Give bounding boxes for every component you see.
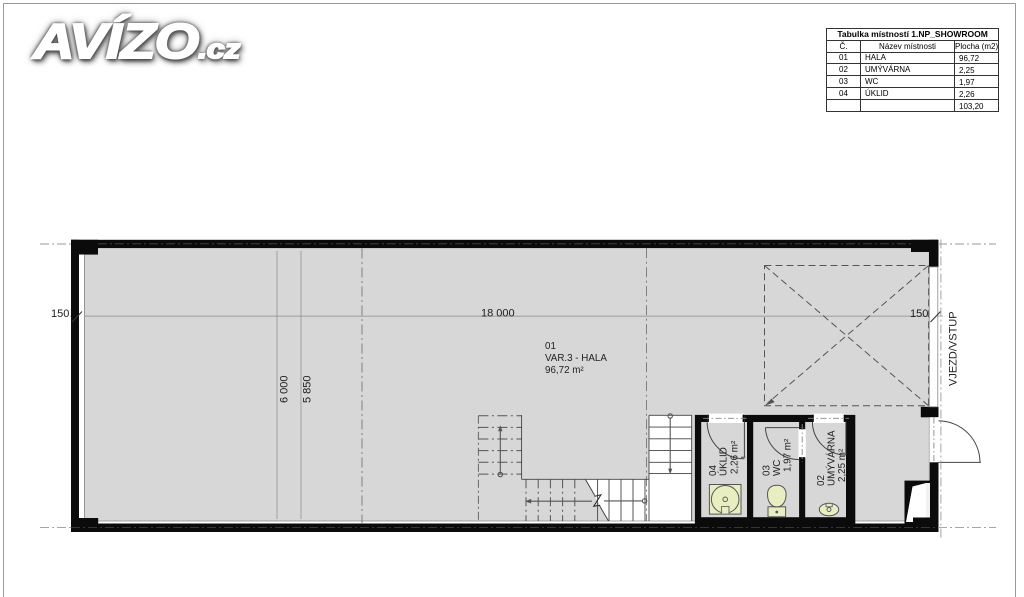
svg-text:UMÝVÁRNA: UMÝVÁRNA	[827, 430, 838, 486]
svg-text:2,25 m²: 2,25 m²	[837, 448, 848, 482]
svg-text:WC: WC	[772, 460, 783, 476]
svg-text:04: 04	[708, 465, 719, 476]
svg-text:VJEZD/VSTUP: VJEZD/VSTUP	[948, 311, 960, 386]
svg-text:03: 03	[762, 465, 773, 476]
svg-text:1,97 m²: 1,97 m²	[783, 438, 794, 472]
svg-text:01: 01	[545, 341, 556, 352]
svg-text:6 000: 6 000	[279, 375, 291, 403]
svg-text:VAR.3 - HALA: VAR.3 - HALA	[545, 353, 607, 364]
svg-text:02: 02	[816, 475, 827, 486]
svg-text:18 000: 18 000	[481, 307, 515, 319]
svg-text:96,72 m²: 96,72 m²	[545, 365, 584, 376]
svg-text:5 850: 5 850	[302, 375, 314, 403]
svg-text:150: 150	[910, 308, 928, 320]
svg-text:ÚKLID: ÚKLID	[719, 447, 730, 476]
svg-text:2,26 m²: 2,26 m²	[729, 440, 740, 474]
svg-text:150: 150	[51, 308, 69, 320]
